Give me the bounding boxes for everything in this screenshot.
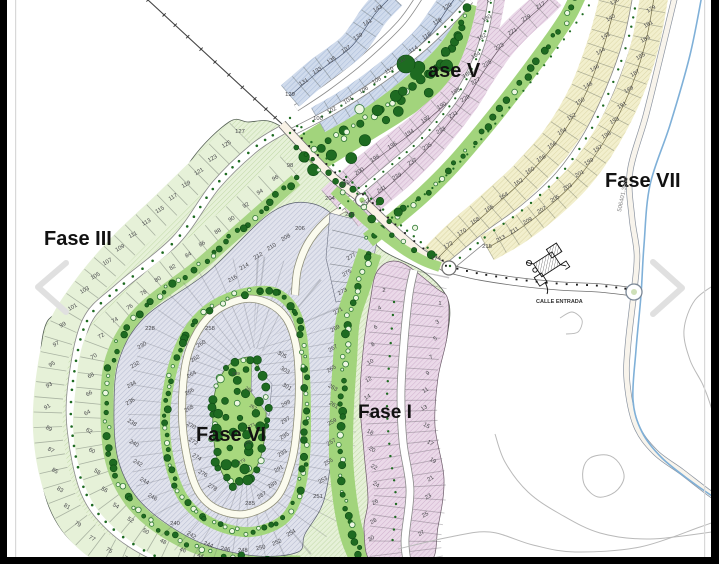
svg-text:248: 248 bbox=[238, 548, 248, 554]
svg-text:Fase I: Fase I bbox=[358, 402, 412, 423]
svg-text:204: 204 bbox=[325, 196, 335, 202]
svg-text:259: 259 bbox=[232, 371, 240, 376]
svg-text:100: 100 bbox=[313, 116, 323, 122]
svg-text:206: 206 bbox=[295, 226, 305, 232]
svg-text:240: 240 bbox=[170, 521, 180, 527]
svg-text:174: 174 bbox=[431, 256, 441, 262]
svg-text:2: 2 bbox=[382, 288, 385, 294]
svg-text:127: 127 bbox=[235, 129, 245, 135]
svg-text:Fase VI: Fase VI bbox=[196, 424, 266, 446]
svg-text:1: 1 bbox=[438, 301, 441, 307]
svg-text:Fase VII: Fase VII bbox=[605, 170, 681, 192]
svg-text:245: 245 bbox=[345, 212, 355, 218]
svg-text:215: 215 bbox=[482, 244, 492, 250]
svg-text:CALLE ENTRADA: CALLE ENTRADA bbox=[536, 299, 583, 305]
svg-text:ase V: ase V bbox=[428, 60, 481, 82]
svg-text:258: 258 bbox=[205, 326, 215, 332]
svg-text:251: 251 bbox=[313, 494, 323, 500]
svg-text:Fase III: Fase III bbox=[44, 228, 112, 250]
svg-text:129: 129 bbox=[285, 92, 295, 98]
svg-text:285: 285 bbox=[245, 501, 255, 507]
svg-text:228: 228 bbox=[145, 326, 155, 332]
svg-text:98: 98 bbox=[287, 163, 293, 169]
